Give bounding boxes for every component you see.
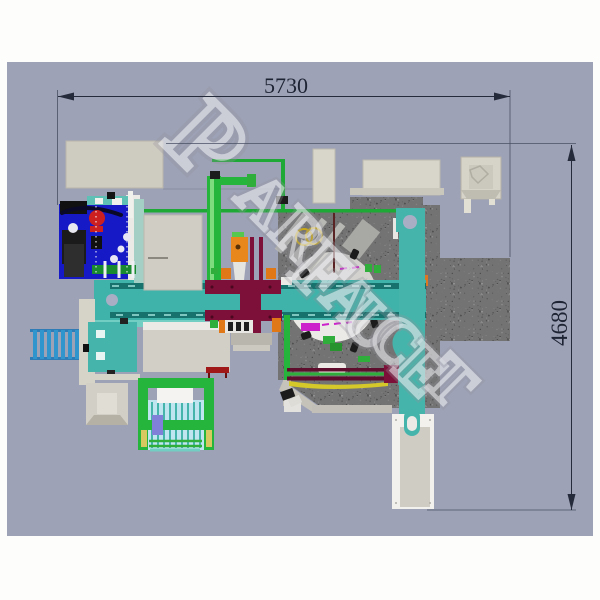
svg-text:4680: 4680 [547,300,572,346]
svg-text:5730: 5730 [264,73,308,98]
